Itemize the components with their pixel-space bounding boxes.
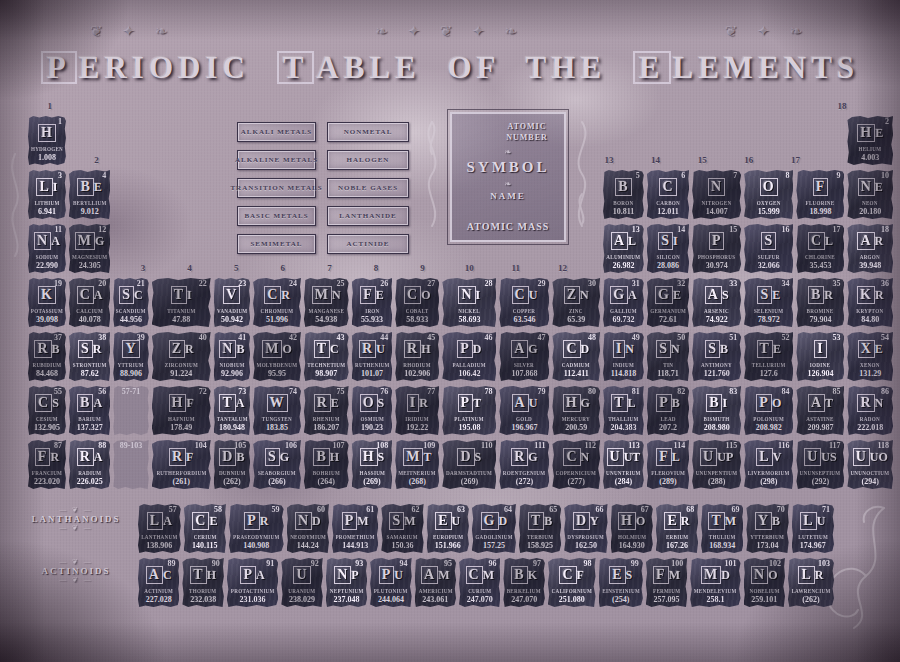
element-name: HASSIUM — [355, 470, 390, 476]
element-tile: 54XEXENON131.29 — [847, 332, 893, 381]
element-tile: 11NASODIUM22.990 — [28, 224, 66, 273]
element-tile: 78PTPLATINUM195.08 — [442, 386, 496, 435]
atomic-number: 54 — [881, 333, 889, 342]
element-tile: 16SSULFUR32.066 — [744, 224, 793, 273]
element-tile: 117UUSUNUNSEPTIUM(292) — [796, 440, 844, 489]
element-name: NEPTUNIUM — [329, 588, 364, 594]
element-name: HYDROGEN — [31, 146, 63, 152]
element-name: GADOLINIUM — [475, 534, 512, 540]
element-name: OXYGEN — [748, 200, 790, 206]
atomic-mass: 112.411 — [552, 369, 600, 378]
atomic-number: 24 — [289, 279, 297, 288]
element-tile: 22TITITANIUM47.88 — [152, 278, 211, 327]
element-name: OSMIUM — [355, 416, 390, 422]
atomic-mass: 259.101 — [744, 595, 785, 604]
element-tile: 1HHYDROGEN1.008 — [28, 116, 66, 165]
atomic-number: 71 — [822, 505, 830, 514]
element-name: UNUNPENTIUM — [696, 470, 738, 476]
element-symbol: RE — [304, 394, 349, 412]
atomic-number: 38 — [98, 333, 106, 342]
atomic-mass: (269) — [352, 477, 393, 486]
element-name: RADON — [851, 416, 890, 422]
atomic-number: 78 — [484, 387, 492, 396]
atomic-number: 73 — [238, 387, 246, 396]
element-tile: 58CECERIUM140.115 — [184, 504, 226, 553]
element-tile: 51SBANTIMONY121.760 — [692, 332, 741, 381]
element-name: NIOBIUM — [216, 362, 247, 368]
element-symbol: I — [796, 340, 844, 358]
element-tile: 30ZNZINC65.39 — [552, 278, 600, 327]
atomic-number: 118 — [878, 441, 890, 450]
atomic-mass: 51.996 — [253, 315, 301, 324]
element-symbol: PB — [647, 394, 689, 412]
element-symbol: CD — [552, 340, 600, 358]
atomic-mass: 144.24 — [287, 541, 329, 550]
element-tile: 105DBDUBNIUM(262) — [214, 440, 251, 489]
element-symbol: FR — [28, 448, 66, 466]
atomic-mass: (298) — [744, 477, 793, 486]
atomic-mass: 14.007 — [692, 207, 741, 216]
atomic-number: 9 — [836, 171, 840, 180]
atomic-number: 80 — [588, 387, 596, 396]
scroll-flourish-icon: — ❦ — — [16, 506, 136, 514]
element-symbol: PO — [744, 394, 793, 412]
element-tile: 72HFHAFNIUM178.49 — [152, 386, 211, 435]
atomic-mass: 222.018 — [847, 423, 893, 432]
atomic-mass: 92.906 — [214, 369, 251, 378]
element-name: PROMETHIUM — [335, 534, 374, 540]
element-tile: 77IRIRIDIUM192.22 — [395, 386, 439, 435]
element-symbol: NO — [744, 566, 785, 584]
element-name: CHROMIUM — [257, 308, 298, 314]
title-word: ELEMENTS — [633, 50, 859, 85]
atomic-mass: (264) — [304, 477, 349, 486]
element-name: LIVERMORIUM — [748, 470, 790, 476]
element-symbol: ZN — [552, 286, 600, 304]
element-name: TERBIUM — [522, 534, 558, 540]
element-name: CHLORINE — [800, 254, 841, 260]
element-symbol: TH — [182, 566, 223, 584]
atomic-mass: 20.180 — [847, 207, 893, 216]
element-tile: 99ESEINSTEINIUM(254) — [599, 558, 643, 607]
atomic-number: 102 — [769, 559, 781, 568]
element-tile: 42MOMOLYBDENUM95.95 — [253, 332, 301, 381]
atomic-mass: 39.098 — [28, 315, 66, 324]
atomic-mass: 107.868 — [499, 369, 549, 378]
element-name: SULFUR — [748, 254, 790, 260]
atomic-number: 117 — [829, 441, 841, 450]
element-symbol: LA — [138, 512, 181, 530]
element-symbol: IN — [603, 340, 644, 358]
element-name: TECHNETIUM — [307, 362, 345, 368]
element-symbol: AS — [692, 286, 741, 304]
element-name: THORIUM — [186, 588, 221, 594]
element-name: SODIUM — [31, 254, 63, 260]
element-symbol: LU — [792, 512, 834, 530]
element-name: POLONIUM — [748, 416, 790, 422]
atomic-mass: 238.029 — [281, 595, 322, 604]
atomic-number: 19 — [54, 279, 62, 288]
atomic-number: 25 — [337, 279, 345, 288]
atomic-number: 39 — [137, 333, 145, 342]
element-symbol: PT — [442, 394, 496, 412]
element-symbol: GA — [603, 286, 644, 304]
element-symbol: GD — [472, 512, 516, 530]
atomic-number: 87 — [54, 441, 62, 450]
element-symbol: BK — [503, 566, 544, 584]
element-tile: 8OOXYGEN15.999 — [744, 170, 793, 219]
element-symbol: OS — [352, 394, 393, 412]
element-symbol: CM — [459, 566, 500, 584]
element-tile: 102NONOBELIUM259.101 — [744, 558, 785, 607]
atomic-mass: 98.907 — [304, 369, 349, 378]
title-word: TABLE — [277, 50, 421, 85]
atomic-number: 27 — [427, 279, 435, 288]
atomic-mass: (294) — [847, 477, 893, 486]
element-name: CALCIUM — [72, 308, 107, 314]
atomic-number: 72 — [199, 387, 207, 396]
atomic-number: 66 — [596, 505, 604, 514]
element-symbol: AM — [415, 566, 456, 584]
atomic-number: 28 — [484, 279, 492, 288]
atomic-mass: 232.038 — [182, 595, 223, 604]
element-tile: 53IIODINE126.904 — [796, 332, 844, 381]
element-tile: 50SNTIN118.71 — [647, 332, 689, 381]
element-symbol: SR — [69, 340, 110, 358]
atomic-mass: 79.904 — [796, 315, 844, 324]
atomic-number: 111 — [534, 441, 545, 450]
atomic-number: 10 — [881, 171, 889, 180]
top-flourish-ornament: ❦ ✦ ❧ ❧ ✦ ❦ ✦ ❧ ❦ ✦ ❧ — [90, 14, 810, 48]
element-symbol: FL — [647, 448, 689, 466]
element-symbol: MN — [304, 286, 349, 304]
atomic-number: 95 — [444, 559, 452, 568]
element-symbol: N — [692, 178, 741, 196]
element-symbol: B — [603, 178, 644, 196]
element-name: DYSPROSIUM — [567, 534, 604, 540]
element-symbol: ES — [599, 566, 643, 584]
element-symbol: SC — [113, 286, 148, 304]
element-name: GALLIUM — [606, 308, 641, 314]
element-symbol: CE — [184, 512, 226, 530]
element-tile: 103LRLAWRENCIUM(262) — [788, 558, 834, 607]
element-tile: 55CSCESIUM132.905 — [28, 386, 66, 435]
atomic-mass: (262) — [214, 477, 251, 486]
atomic-number: 89 — [167, 559, 175, 568]
element-symbol: RH — [395, 340, 439, 358]
atomic-number: 77 — [427, 387, 435, 396]
element-tile: 63EUEUROPIUM151.966 — [427, 504, 469, 553]
element-name: LUTETIUM — [795, 534, 831, 540]
atomic-number: 57 — [169, 505, 177, 514]
atomic-mass: 32.066 — [744, 261, 793, 270]
atomic-number: 110 — [481, 441, 493, 450]
element-symbol: CR — [253, 286, 301, 304]
element-symbol: W — [253, 394, 301, 412]
element-symbol: CO — [395, 286, 439, 304]
element-name: NITROGEN — [696, 200, 738, 206]
element-symbol: SI — [647, 232, 689, 250]
atomic-number: 5 — [636, 171, 640, 180]
atomic-mass: (266) — [253, 477, 301, 486]
atomic-number: 58 — [214, 505, 222, 514]
atomic-number: 103 — [818, 559, 830, 568]
element-name: RUTHENIUM — [355, 362, 390, 368]
atomic-number: 83 — [729, 387, 737, 396]
element-name: INDIUM — [606, 362, 641, 368]
element-name: LITHIUM — [31, 200, 63, 206]
element-tile: 86RNRADON222.018 — [847, 386, 893, 435]
atomic-number: 29 — [537, 279, 545, 288]
element-symbol: TA — [214, 394, 251, 412]
element-symbol: PA — [227, 566, 279, 584]
group-number-label: 1 — [48, 101, 53, 111]
atomic-mass: 30.974 — [692, 261, 741, 270]
atomic-number: 81 — [632, 387, 640, 396]
atomic-mass: 87.62 — [69, 369, 110, 378]
element-symbol: CN — [552, 448, 600, 466]
atomic-mass: 140.908 — [229, 541, 284, 550]
atomic-mass: 18.998 — [796, 207, 844, 216]
atomic-mass: 227.028 — [138, 595, 179, 604]
element-name: BARIUM — [72, 416, 107, 422]
element-name: URANIUM — [284, 588, 319, 594]
atomic-mass: 1.008 — [28, 153, 66, 162]
element-tile: 115UUPUNUNPENTIUM(288) — [692, 440, 741, 489]
element-name: LANTHANUM — [141, 534, 177, 540]
atomic-number: 64 — [504, 505, 512, 514]
element-name: NEON — [851, 200, 890, 206]
element-symbol: RN — [847, 394, 893, 412]
element-symbol: UUT — [603, 448, 644, 466]
atomic-mass: 247.070 — [459, 595, 500, 604]
atomic-number: 50 — [677, 333, 685, 342]
element-symbol: SN — [647, 340, 689, 358]
element-name: MEITNERIUM — [399, 470, 436, 476]
element-tile: 66DYDYSPROSIUM162.50 — [564, 504, 607, 553]
title-word: OF — [448, 50, 500, 85]
atomic-mass: 55.933 — [352, 315, 393, 324]
element-symbol: H — [28, 124, 66, 142]
element-name: POTASSIUM — [31, 308, 63, 314]
element-symbol: PM — [332, 512, 378, 530]
element-tile: 31GAGALLIUM69.732 — [603, 278, 644, 327]
element-name: BERYLLIUM — [72, 200, 107, 206]
element-symbol: CF — [548, 566, 596, 584]
atomic-mass: 200.59 — [552, 423, 600, 432]
element-tile: 18ARARGON39.948 — [847, 224, 893, 273]
atomic-number: 114 — [674, 441, 686, 450]
lanthanide-row: 57LALANTHANUM138.90658CECERIUM140.11559P… — [138, 504, 834, 553]
element-tile: 81TLTHALLIUM204.383 — [603, 386, 644, 435]
element-name: NEODYMIUM — [290, 534, 326, 540]
actinoids-label: — ❦ — ACTINOIDS — ❦ — — [22, 558, 130, 585]
atomic-mass: 88.906 — [113, 369, 148, 378]
atomic-mass: 244.064 — [370, 595, 411, 604]
element-tile: 71LULUTETIUM174.967 — [792, 504, 834, 553]
atomic-number: 31 — [632, 279, 640, 288]
atomic-mass: 223.020 — [28, 477, 66, 486]
element-tile: 97BKBERKELIUM247.070 — [503, 558, 544, 607]
element-symbol: BI — [692, 394, 741, 412]
element-tile: 90THTHORIUM232.038 — [182, 558, 223, 607]
atomic-number: 61 — [366, 505, 374, 514]
element-tile: 100FMFERMIUM257.095 — [646, 558, 687, 607]
element-symbol: PU — [370, 566, 411, 584]
atomic-mass: (277) — [552, 477, 600, 486]
element-name: PLUTONIUM — [373, 588, 408, 594]
atomic-number: 101 — [725, 559, 737, 568]
atomic-mass: 195.08 — [442, 423, 496, 432]
element-tile: 39YYTTRIUM88.906 — [113, 332, 148, 381]
atomic-number: 88 — [98, 441, 106, 450]
element-name: DARMSTADTIUM — [446, 470, 492, 476]
element-tile: 29CUCOPPER63.546 — [499, 278, 549, 327]
element-symbol: ER — [656, 512, 698, 530]
element-tile: 114FLFLEROVIUM(289) — [647, 440, 689, 489]
element-name: EUROPIUM — [430, 534, 466, 540]
atomic-mass: 132.905 — [28, 423, 66, 432]
element-symbol: GE — [647, 286, 689, 304]
atomic-mass: 192.22 — [395, 423, 439, 432]
element-tile: 80HGMERCURY200.59 — [552, 386, 600, 435]
atomic-mass: 95.95 — [253, 369, 301, 378]
atomic-number: 115 — [726, 441, 738, 450]
atomic-mass: 186.207 — [304, 423, 349, 432]
element-name: MENDELEVIUM — [694, 588, 737, 594]
element-name: ARGON — [851, 254, 890, 260]
element-name: SILICON — [650, 254, 686, 260]
periodic-table-grid: 1HHYDROGEN1.0082HEHELIUM4.0033LILITHIUM6… — [28, 116, 864, 489]
element-symbol: NP — [326, 566, 367, 584]
element-tile: 32GEGERMANIUM72.61 — [647, 278, 689, 327]
atomic-mass: (268) — [395, 477, 439, 486]
element-symbol: HE — [847, 124, 893, 142]
element-tile: 94PUPLUTONIUM244.064 — [370, 558, 411, 607]
atomic-number: 93 — [355, 559, 363, 568]
atomic-mass: 243.061 — [415, 595, 456, 604]
element-tile: 23VVANADIUM50.942 — [214, 278, 251, 327]
atomic-number: 3 — [58, 171, 62, 180]
atomic-number: 90 — [212, 559, 220, 568]
element-symbol: BR — [796, 286, 844, 304]
element-tile: 85ATASTATINE209.987 — [796, 386, 844, 435]
atomic-number: 23 — [238, 279, 246, 288]
element-symbol: DY — [564, 512, 607, 530]
element-tile: 68ERERBIUM167.26 — [656, 504, 698, 553]
atomic-number: 74 — [289, 387, 297, 396]
lanthanoids-label: — ❦ — LANTHANOIDS — ❦ — — [16, 506, 136, 533]
fblock-range-placeholder: 57-71 — [113, 386, 148, 435]
atomic-mass: 168.934 — [701, 541, 743, 550]
element-name: TIN — [650, 362, 686, 368]
element-tile: 61PMPROMETHIUM144.913 — [332, 504, 378, 553]
element-symbol: NB — [214, 340, 251, 358]
element-tile: 111RGROENTGENIUM(272) — [499, 440, 549, 489]
element-tile: 15PPHOSPHORUS30.974 — [692, 224, 741, 273]
element-tile: 98CFCALIFORNIUM251.080 — [548, 558, 596, 607]
element-symbol: MO — [253, 340, 301, 358]
element-tile: 35BRBROMINE79.904 — [796, 278, 844, 327]
element-symbol: NI — [442, 286, 496, 304]
element-name: CARBON — [650, 200, 686, 206]
atomic-number: 1 — [58, 117, 62, 126]
element-symbol: Y — [113, 340, 148, 358]
element-tile: 47AGSILVER107.868 — [499, 332, 549, 381]
element-name: THALLIUM — [606, 416, 641, 422]
element-name: CURIUM — [462, 588, 497, 594]
element-symbol: O — [744, 178, 793, 196]
atomic-number: 116 — [778, 441, 790, 450]
element-symbol: CS — [28, 394, 66, 412]
atomic-number: 11 — [54, 225, 62, 234]
atomic-mass: (272) — [499, 477, 549, 486]
element-name: LAWRENCIUM — [791, 588, 830, 594]
atomic-mass: 44.956 — [113, 315, 148, 324]
element-name: FERMIUM — [649, 588, 684, 594]
atomic-mass: 102.906 — [395, 369, 439, 378]
atomic-number: 30 — [588, 279, 596, 288]
atomic-number: 13 — [632, 225, 640, 234]
atomic-number: 98 — [584, 559, 592, 568]
element-tile: 79AUGOLD196.967 — [499, 386, 549, 435]
element-tile: 57LALANTHANUM138.906 — [138, 504, 181, 553]
atomic-number: 15 — [729, 225, 737, 234]
range-label: 57-71 — [122, 387, 141, 396]
element-name: ASTATINE — [800, 416, 841, 422]
atomic-number: 107 — [333, 441, 345, 450]
atomic-mass: 12.011 — [647, 207, 689, 216]
element-name: ALUMINIUM — [606, 254, 641, 260]
atomic-mass: 28.086 — [647, 261, 689, 270]
atomic-number: 85 — [832, 387, 840, 396]
element-tile: 40ZRZIRCONIUM91.224 — [152, 332, 211, 381]
atomic-mass: (261) — [152, 477, 211, 486]
element-name: YTTERBIUM — [750, 534, 786, 540]
atomic-number: 60 — [317, 505, 325, 514]
element-name: SELENIUM — [748, 308, 790, 314]
element-name: UNUNTRIUM — [606, 470, 641, 476]
element-tile: 17CLCHLORINE35.453 — [796, 224, 844, 273]
atomic-mass: 40.078 — [69, 315, 110, 324]
atomic-number: 40 — [199, 333, 207, 342]
element-symbol: TE — [744, 340, 793, 358]
atomic-mass: 196.967 — [499, 423, 549, 432]
atomic-number: 97 — [533, 559, 541, 568]
atomic-mass: 24.305 — [69, 261, 110, 270]
atomic-mass: (292) — [796, 477, 844, 486]
element-tile: 44RURUTHENIUM101.07 — [352, 332, 393, 381]
atomic-number: 112 — [585, 441, 597, 450]
atomic-mass: 84.80 — [847, 315, 893, 324]
group-number-label: 18 — [838, 101, 847, 111]
atomic-number: 108 — [376, 441, 388, 450]
element-name: ZIRCONIUM — [156, 362, 206, 368]
element-tile: 64GDGADOLINIUM157.25 — [472, 504, 516, 553]
element-symbol: AR — [847, 232, 893, 250]
element-symbol: TM — [701, 512, 743, 530]
element-symbol: NE — [847, 178, 893, 196]
element-symbol: F — [796, 178, 844, 196]
element-name: FRANCIUM — [31, 470, 63, 476]
element-tile: 36KRKRYPTON84.80 — [847, 278, 893, 327]
atomic-mass: 101.07 — [352, 369, 393, 378]
element-symbol: NA — [28, 232, 66, 250]
element-name: FLUORINE — [800, 200, 841, 206]
atomic-mass: (262) — [788, 595, 834, 604]
element-tile: 24CRCHROMIUM51.996 — [253, 278, 301, 327]
atomic-number: 62 — [412, 505, 420, 514]
